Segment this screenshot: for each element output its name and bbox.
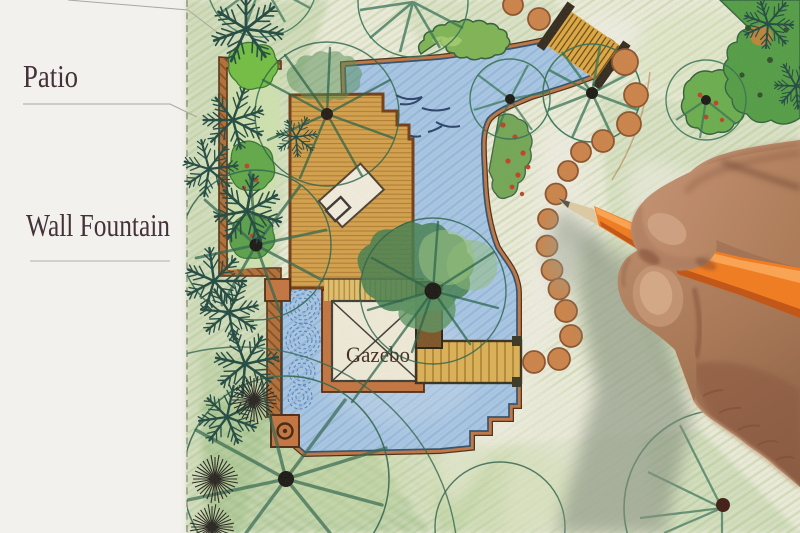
- svg-text:Patio: Patio: [23, 58, 78, 94]
- svg-text:Gazebo: Gazebo: [346, 342, 410, 367]
- svg-text:Wall Fountain: Wall Fountain: [26, 207, 170, 243]
